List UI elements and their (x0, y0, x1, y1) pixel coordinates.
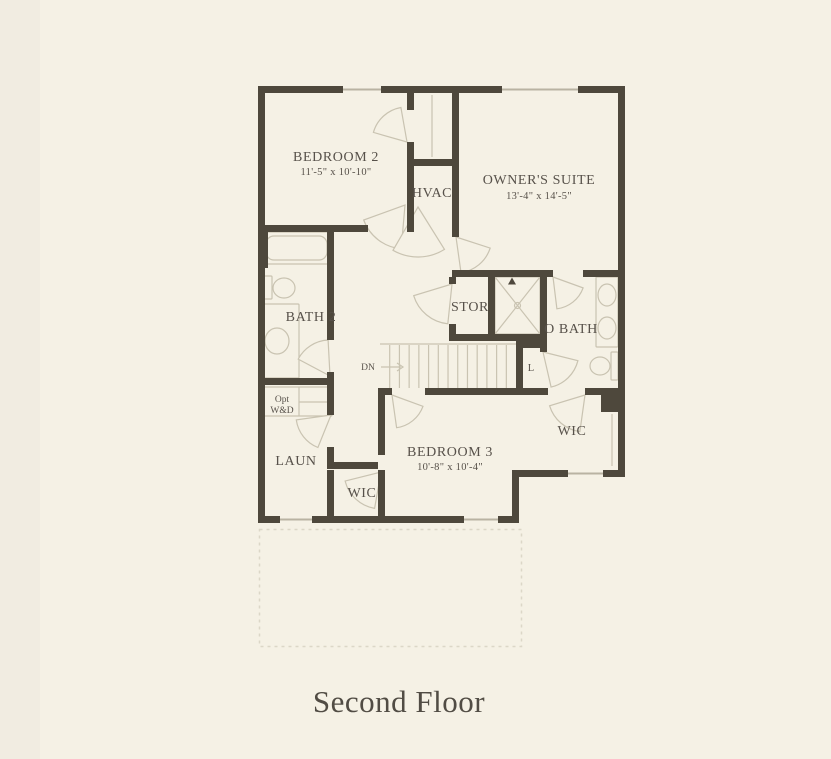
wall-segment (603, 470, 625, 477)
room-dims-owners-suite: 13'-4" x 14'-5" (506, 191, 572, 202)
wic-chase-block (601, 395, 618, 412)
wall-segment (425, 388, 548, 395)
wall-segment (378, 395, 385, 455)
wall-segment (516, 341, 523, 395)
wall-segment (258, 86, 265, 523)
room-label-laun: LAUN (275, 454, 316, 469)
wall-segment (585, 388, 618, 395)
room-label-obath: O BATH (544, 322, 598, 337)
room-label-owners-suite: OWNER'S SUITE (483, 173, 596, 188)
room-label-bath2: BATH 2 (286, 310, 337, 325)
room-label-bedroom3: BEDROOM 3 (407, 445, 493, 460)
room-dims-bedroom2: 11'-5" x 10'-10" (300, 167, 371, 178)
room-label-wic-center: WIC (347, 486, 376, 501)
wall-segment (540, 277, 547, 352)
wall-segment (378, 470, 385, 516)
wall-segment (583, 270, 618, 277)
wall-segment (407, 93, 414, 110)
page-background (0, 0, 831, 759)
room-label-hvac: HVAC (412, 186, 452, 201)
room-label-linen: L (528, 363, 534, 374)
wall-segment (414, 159, 452, 166)
wall-segment (327, 447, 334, 462)
tub-plumbing-niche (258, 231, 268, 268)
wall-segment (327, 462, 378, 469)
wall-segment (452, 270, 553, 277)
wall-segment (618, 86, 625, 477)
optwd-label-line2: W&D (270, 406, 293, 416)
room-label-stor: STOR (451, 300, 489, 315)
wall-segment (258, 516, 280, 523)
wall-segment (578, 86, 625, 93)
optwd-label-line1: Opt (275, 395, 290, 405)
wall-segment (512, 470, 519, 523)
wall-segment (258, 225, 368, 232)
wall-segment (381, 86, 502, 93)
wall-segment (518, 470, 568, 477)
left-margin-strip (0, 0, 40, 759)
wall-segment (378, 388, 392, 395)
floor-title: Second Floor (313, 684, 485, 719)
stairs-dn-label: DN (361, 363, 375, 373)
wall-segment (327, 470, 334, 516)
wall-segment (312, 516, 464, 523)
wall-segment (327, 372, 334, 378)
room-label-wic-right: WIC (557, 424, 586, 439)
room-dims-bedroom3: 10'-8" x 10'-4" (417, 462, 483, 473)
wall-segment (258, 86, 343, 93)
floor-plan: BEDROOM 2 11'-5" x 10'-10" HVAC OWNER'S … (0, 0, 831, 759)
wall-segment (449, 334, 547, 341)
wall-segment (449, 277, 456, 284)
wall-segment (452, 93, 459, 237)
wall-segment (258, 378, 334, 385)
wall-segment (488, 277, 495, 341)
wall-segment (498, 516, 519, 523)
room-label-bedroom2: BEDROOM 2 (293, 150, 379, 165)
